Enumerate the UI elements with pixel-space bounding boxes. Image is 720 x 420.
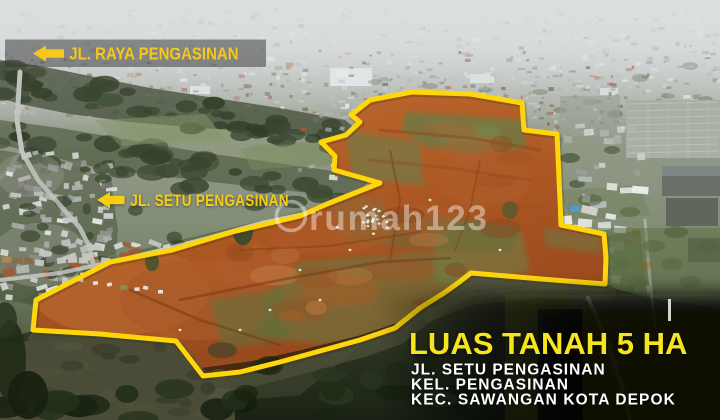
svg-text:rumah123: rumah123 [309,199,489,238]
svg-text:JL. RAYA PENGASINAN: JL. RAYA PENGASINAN [69,44,238,63]
svg-text:JL. SETU PENGASINAN: JL. SETU PENGASINAN [130,192,289,211]
svg-text:KEC. SAWANGAN KOTA DEPOK: KEC. SAWANGAN KOTA DEPOK [411,392,676,409]
svg-text:LUAS TANAH 5 HA: LUAS TANAH 5 HA [409,326,687,361]
